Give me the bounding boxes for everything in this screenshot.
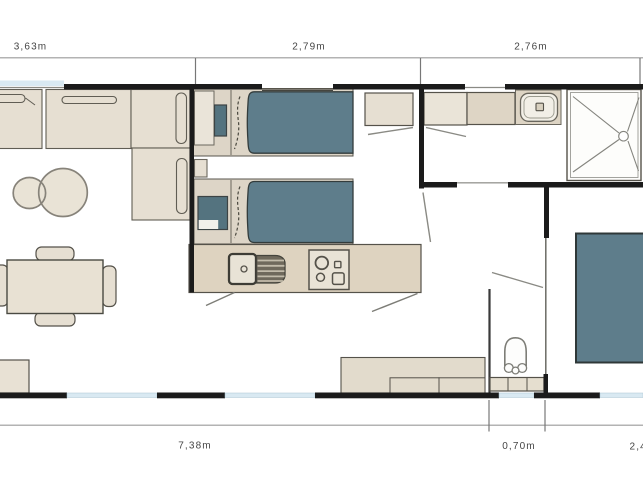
- svg-text:2,76m: 2,76m: [514, 42, 548, 53]
- svg-text:2,79m: 2,79m: [292, 42, 326, 53]
- svg-text:2,4: 2,4: [630, 442, 643, 453]
- svg-text:7,38m: 7,38m: [178, 441, 212, 452]
- svg-text:0,70m: 0,70m: [502, 441, 536, 452]
- svg-text:3,63m: 3,63m: [14, 42, 48, 53]
